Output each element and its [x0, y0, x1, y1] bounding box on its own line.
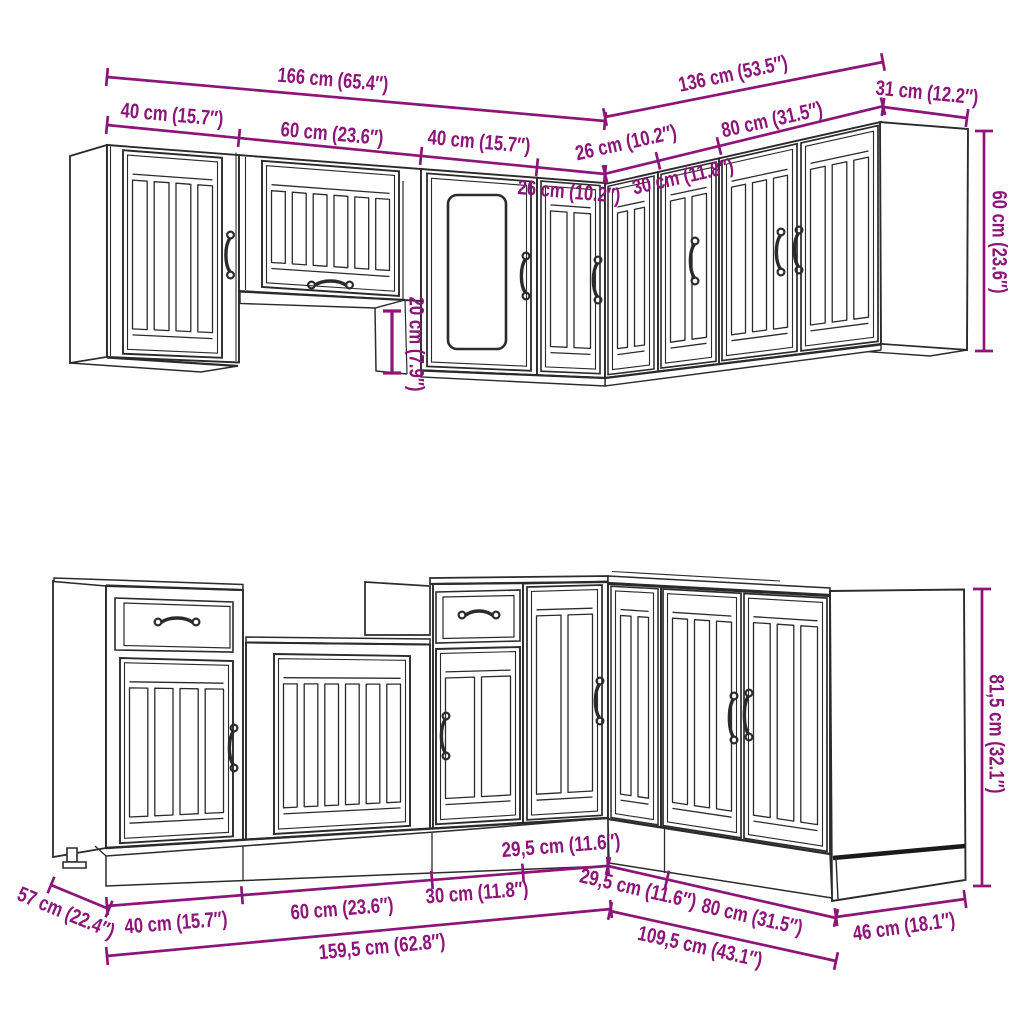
svg-text:60 cm (23.6″): 60 cm (23.6″) [988, 191, 1011, 294]
svg-text:20 cm (7.9″): 20 cm (7.9″) [405, 297, 428, 392]
svg-text:81,5 cm (32.1″): 81,5 cm (32.1″) [985, 675, 1008, 794]
